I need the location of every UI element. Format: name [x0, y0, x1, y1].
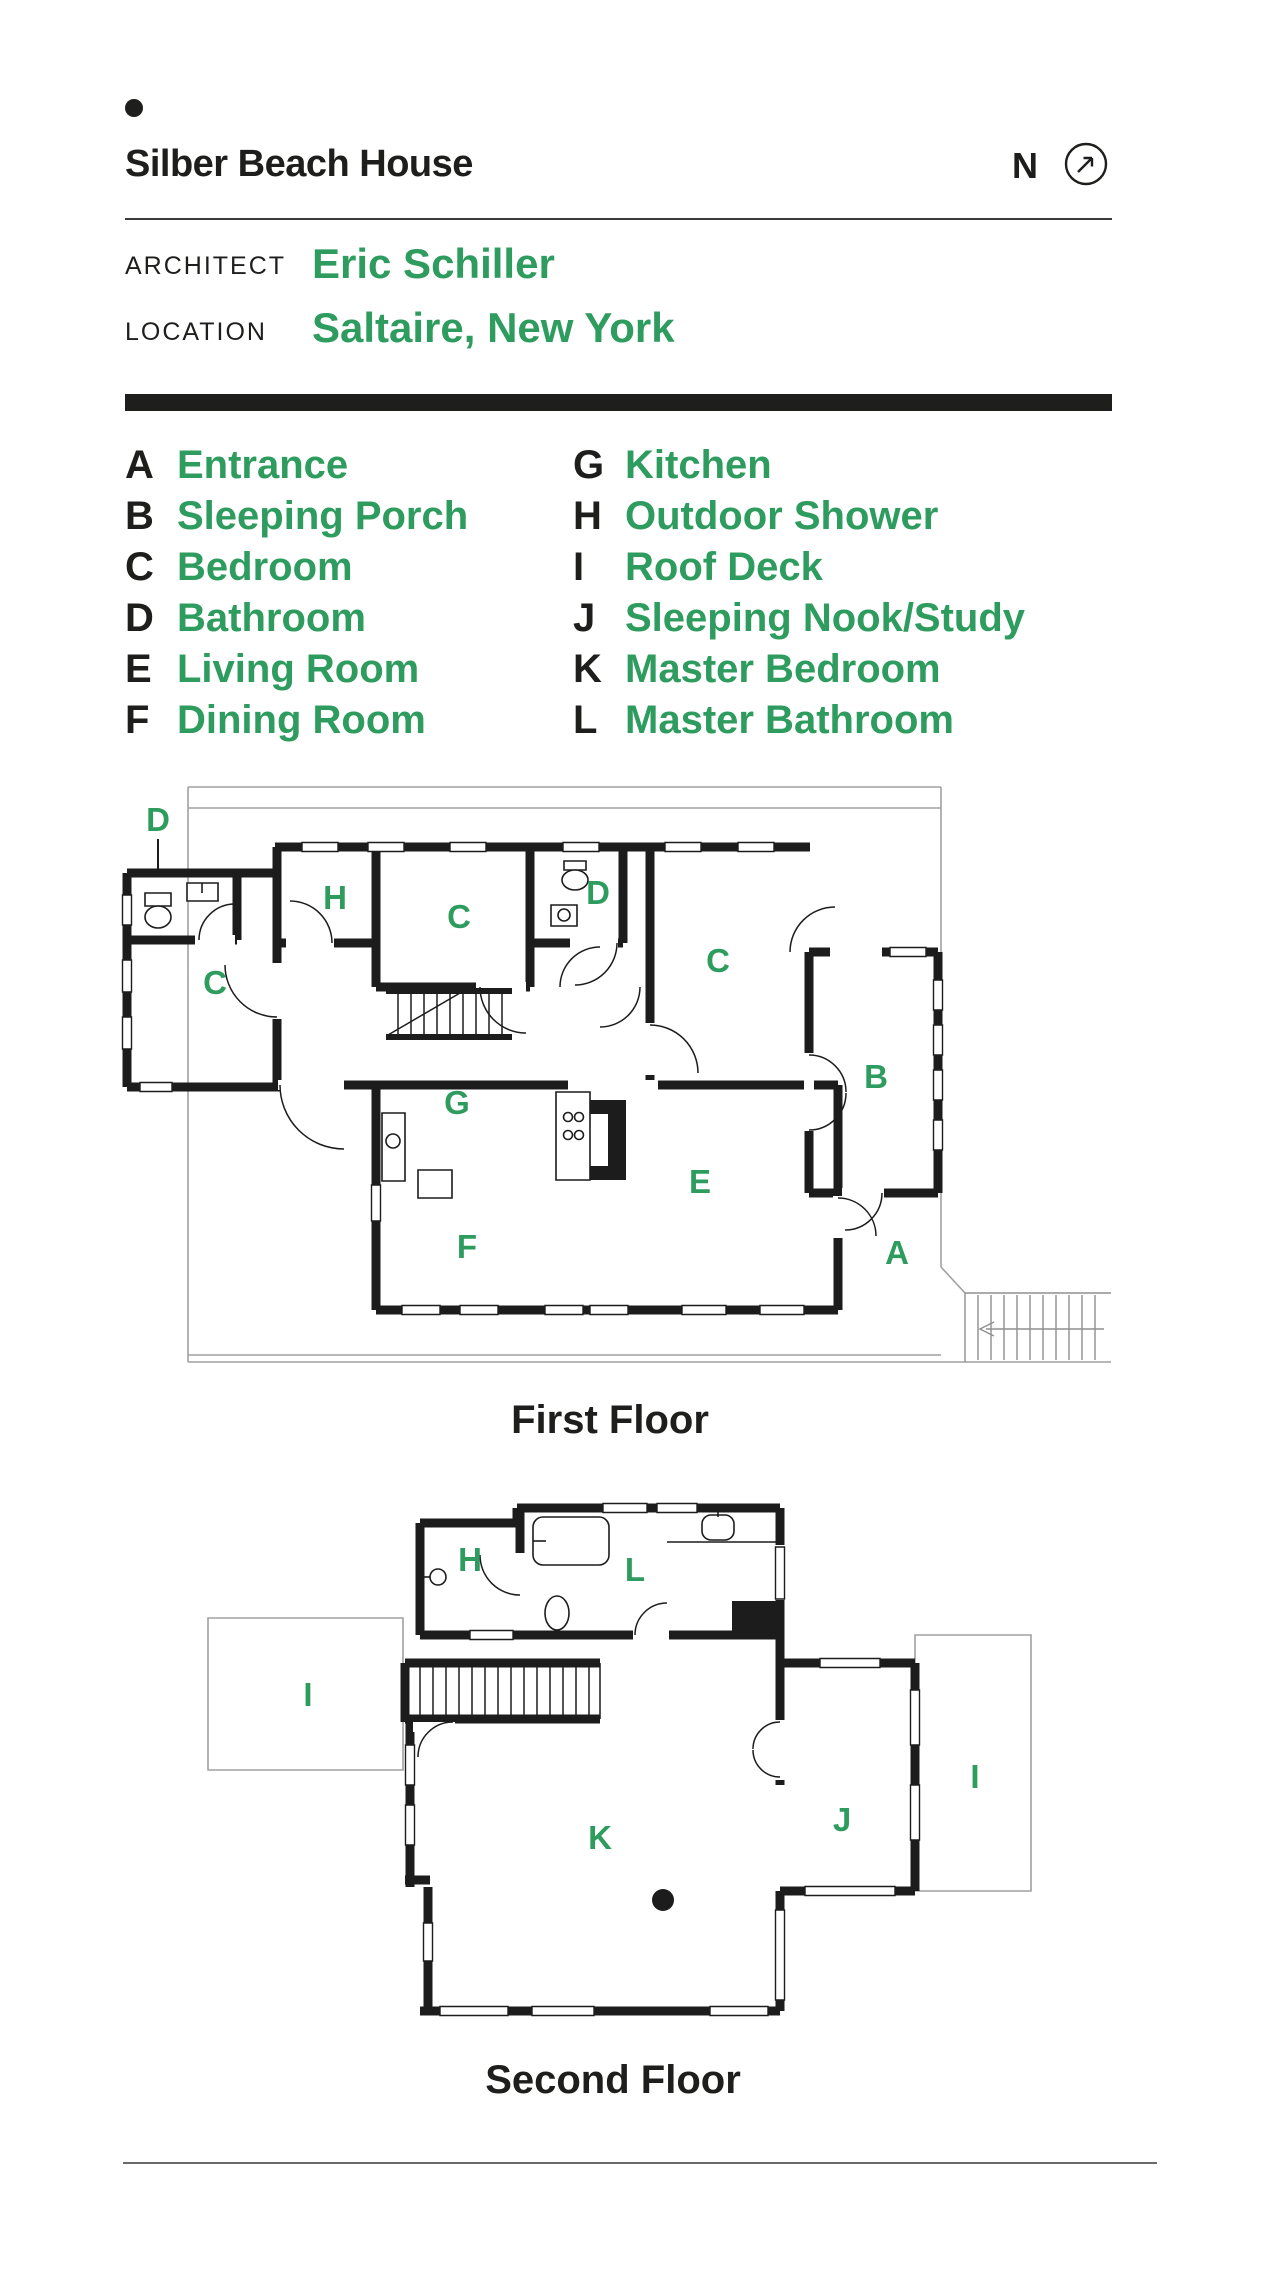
interior-stairs — [420, 1663, 600, 1719]
room-label-master-bedroom: K — [588, 1819, 612, 1857]
room-label-roof-deck-left: I — [303, 1676, 312, 1714]
room-label-bedroom-left: C — [203, 964, 227, 1002]
legend-name: Bathroom — [177, 596, 366, 640]
legend-item-entrance: AEntrance — [125, 440, 348, 491]
architect-name: Eric Schiller — [312, 240, 555, 288]
legend-name: Master Bathroom — [625, 698, 954, 742]
second-floor-caption: Second Floor — [98, 2058, 1128, 2103]
legend-item-roof-deck: IRoof Deck — [573, 542, 823, 593]
legend-item-living-room: ELiving Room — [125, 644, 419, 695]
legend-item-kitchen: GKitchen — [573, 440, 772, 491]
legend-key: I — [573, 542, 625, 593]
location-label: LOCATION — [125, 318, 267, 347]
windows — [406, 1504, 920, 2016]
floor-plan-sheet: Silber Beach House N ARCHITECT Eric Schi… — [0, 0, 1280, 2271]
room-label-bedroom-right: C — [706, 942, 730, 980]
legend-name: Master Bedroom — [625, 647, 941, 691]
kitchen-island-counter — [590, 1100, 626, 1180]
room-label-entrance: A — [885, 1234, 909, 1272]
room-label-kitchen: G — [444, 1084, 470, 1122]
first-floor-plan: D C H C D C B G E F A — [120, 755, 1150, 1405]
room-label-sleeping-nook: J — [833, 1801, 851, 1839]
legend-key: C — [125, 542, 177, 593]
legend-key: L — [573, 695, 625, 746]
legend-key: J — [573, 593, 625, 644]
legend-item-master-bedroom: KMaster Bedroom — [573, 644, 941, 695]
legend-key: A — [125, 440, 177, 491]
legend-name: Sleeping Porch — [177, 494, 468, 538]
legend-name: Bedroom — [177, 545, 353, 589]
room-label-outdoor-shower: H — [458, 1541, 482, 1579]
legend-item-sleeping-porch: BSleeping Porch — [125, 491, 468, 542]
legend-item-sleeping-nook-study: JSleeping Nook/Study — [573, 593, 1025, 644]
legend-name: Dining Room — [177, 698, 426, 742]
first-floor-caption: First Floor — [95, 1398, 1125, 1443]
legend-item-master-bathroom: LMaster Bathroom — [573, 695, 954, 746]
second-floor-walls — [405, 1508, 915, 2011]
first-floor-walls — [127, 847, 938, 1310]
legend-item-bathroom: DBathroom — [125, 593, 366, 644]
legend-key: E — [125, 644, 177, 695]
legend-key: K — [573, 644, 625, 695]
interior-stairs — [386, 991, 512, 1037]
exterior-stairs — [965, 1293, 1111, 1362]
location-name: Saltaire, New York — [312, 304, 675, 352]
legend-key: F — [125, 695, 177, 746]
section-divider-bar — [125, 394, 1112, 411]
legend-key: B — [125, 491, 177, 542]
legend-name: Outdoor Shower — [625, 494, 938, 538]
legend-item-bedroom: CBedroom — [125, 542, 353, 593]
compass-icon — [1064, 142, 1108, 186]
second-floor-plan: H L I J I K — [120, 1455, 1150, 2055]
legend-item-outdoor-shower: HOutdoor Shower — [573, 491, 938, 542]
chimney-closet-block — [732, 1601, 780, 1639]
column-dot — [652, 1889, 674, 1911]
corner-dot — [125, 99, 143, 117]
architect-label: ARCHITECT — [125, 252, 286, 281]
legend-key: H — [573, 491, 625, 542]
legend-key: G — [573, 440, 625, 491]
compass-north-letter: N — [1012, 145, 1038, 187]
room-label-sleeping-porch: B — [864, 1058, 888, 1096]
header-divider — [125, 218, 1112, 220]
legend-name: Sleeping Nook/Study — [625, 596, 1025, 640]
room-label-bathroom-center: D — [586, 874, 610, 912]
legend-item-dining-room: FDining Room — [125, 695, 426, 746]
page-title: Silber Beach House — [125, 143, 473, 186]
legend-name: Entrance — [177, 443, 348, 487]
room-label-living-room: E — [689, 1163, 711, 1201]
room-label-dining-room: F — [457, 1228, 477, 1266]
door-arcs — [199, 901, 882, 1236]
room-label-master-bathroom: L — [625, 1551, 645, 1589]
room-label-roof-deck-right: I — [970, 1758, 979, 1796]
legend-name: Living Room — [177, 647, 419, 691]
room-label-outdoor-shower: H — [323, 879, 347, 917]
room-label-bedroom-center: C — [447, 898, 471, 936]
room-label-bathroom-left: D — [146, 801, 170, 839]
legend-key: D — [125, 593, 177, 644]
legend-name: Kitchen — [625, 443, 772, 487]
legend-name: Roof Deck — [625, 545, 823, 589]
footer-divider — [123, 2162, 1157, 2164]
